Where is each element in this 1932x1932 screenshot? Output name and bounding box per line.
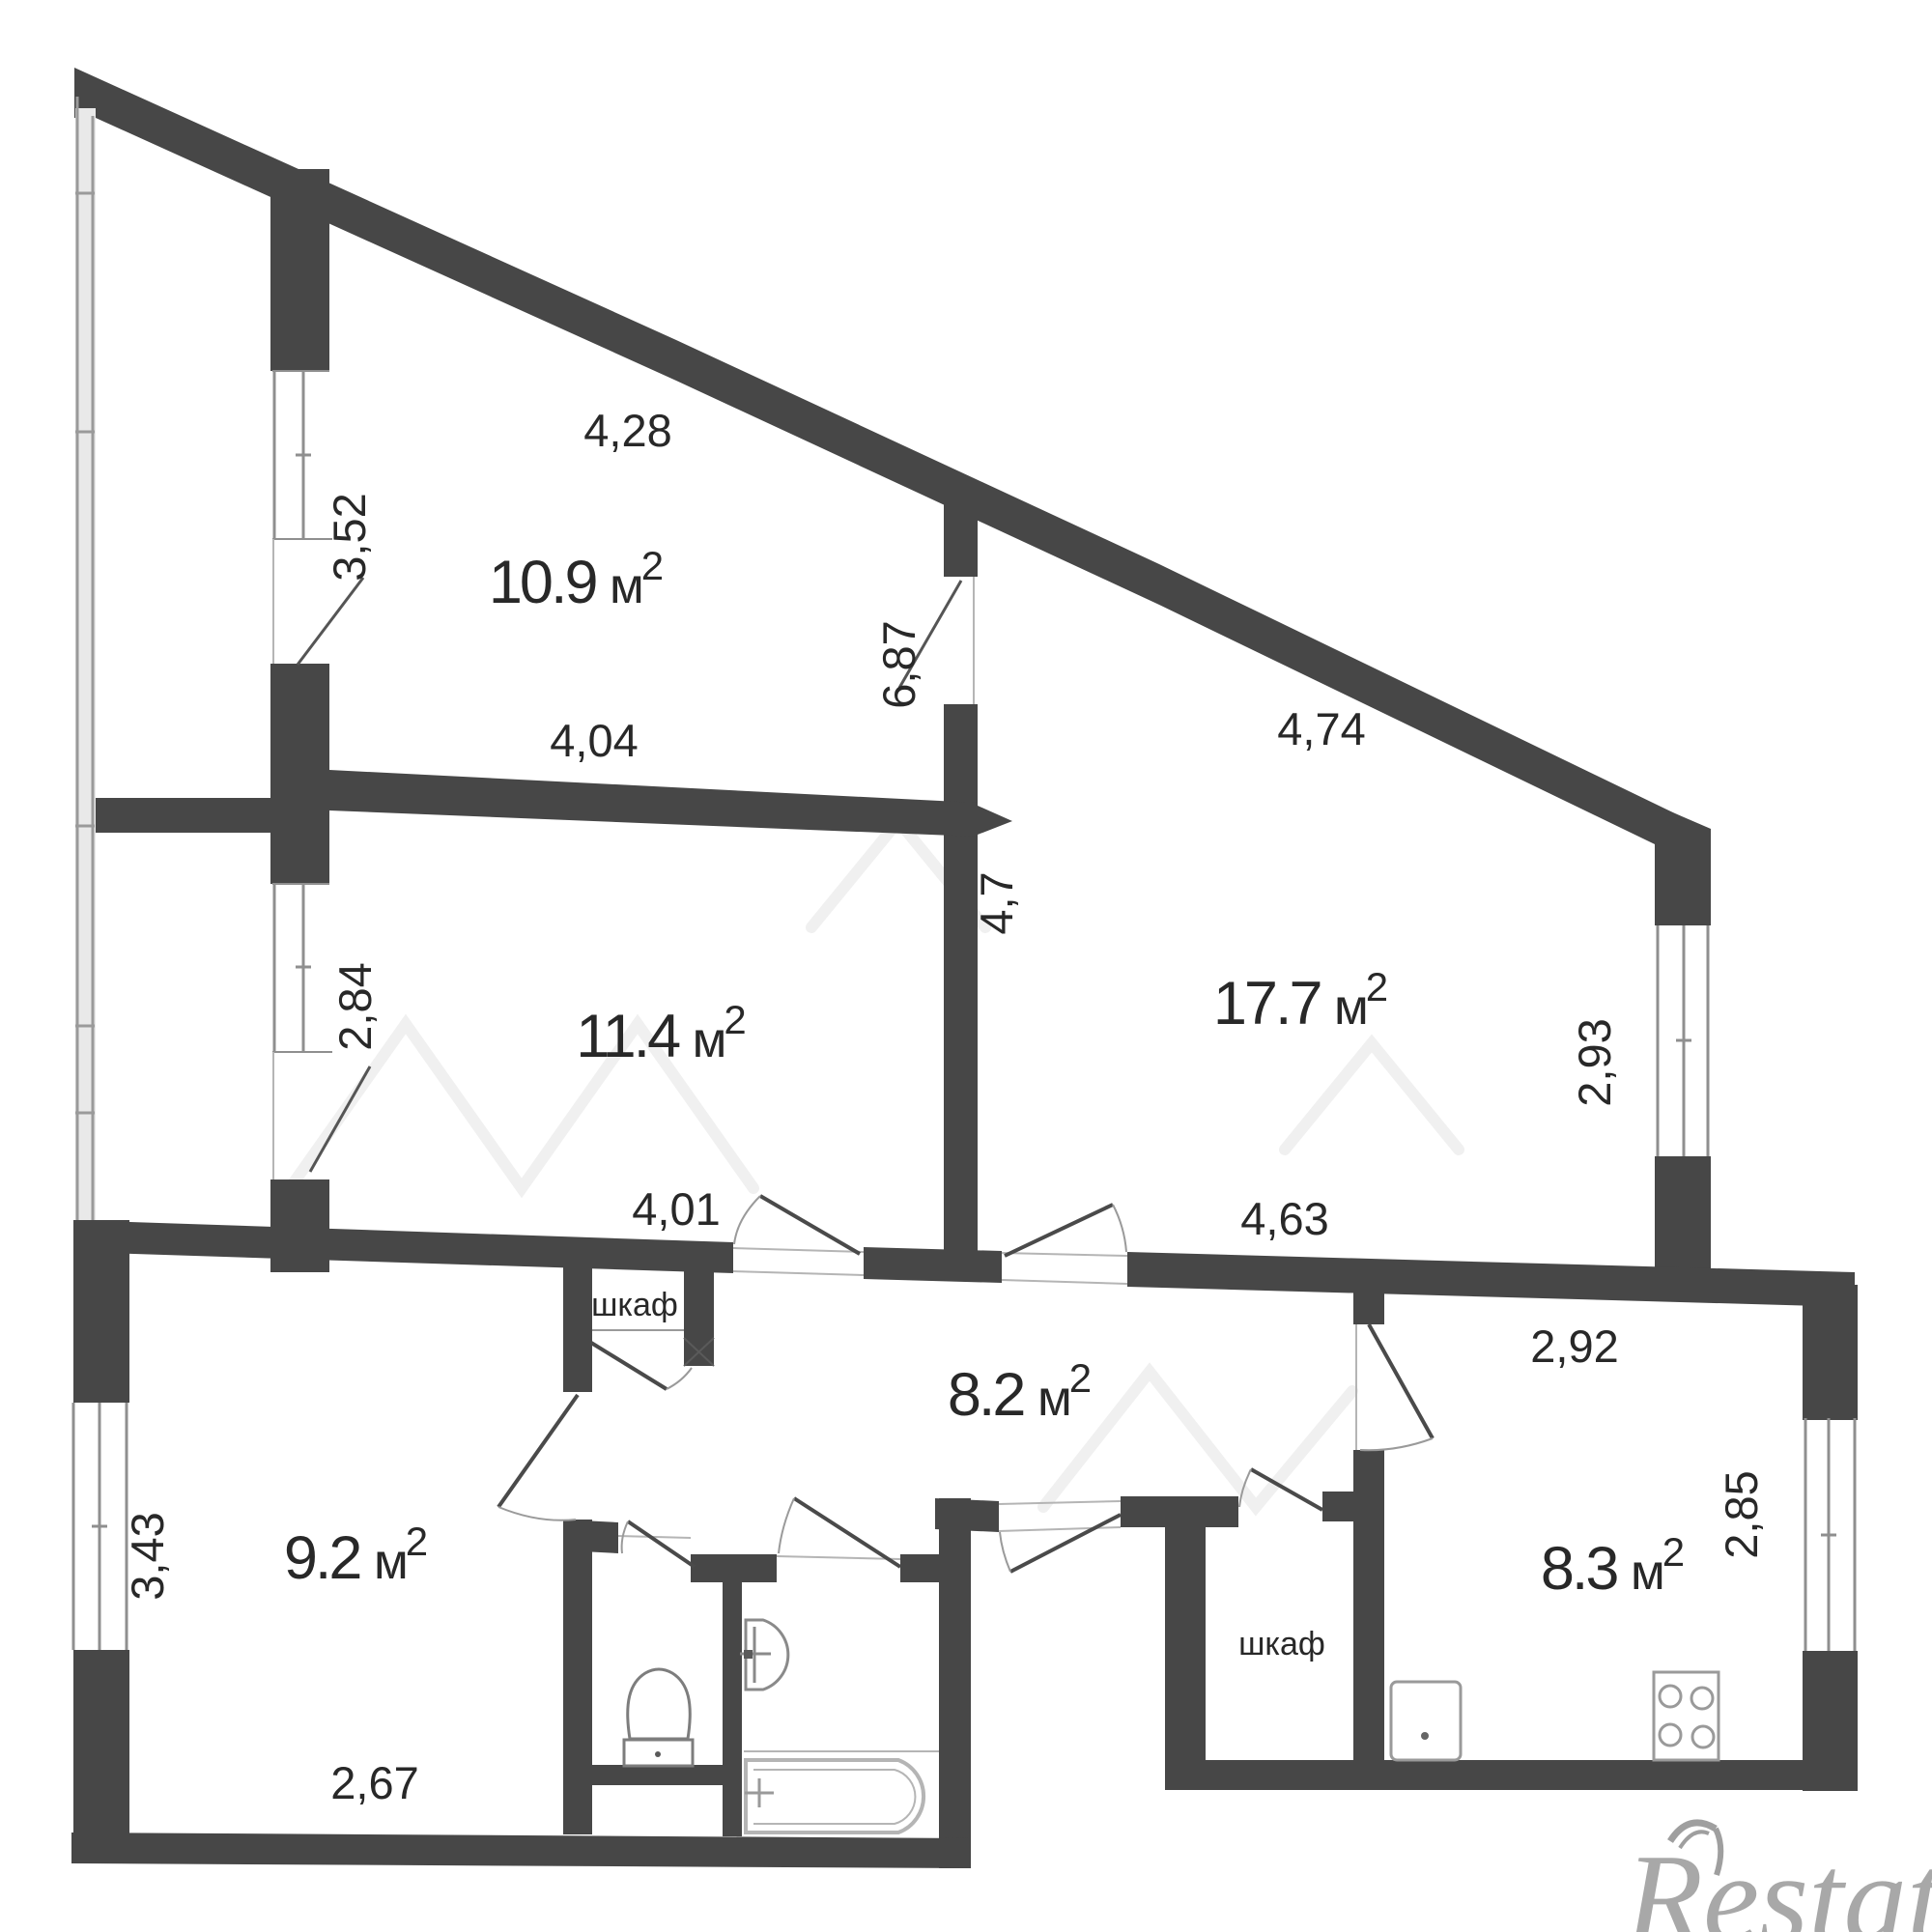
svg-text:4,7: 4,7 [971,871,1022,934]
svg-text:2,85: 2,85 [1716,1470,1767,1558]
svg-text:шкаф: шкаф [1238,1626,1325,1662]
svg-text:3,43: 3,43 [122,1512,173,1600]
svg-text:9.2 м2: 9.2 м2 [284,1519,427,1592]
svg-text:8.3 м2: 8.3 м2 [1541,1529,1684,1603]
svg-text:2,84: 2,84 [329,962,381,1050]
svg-text:4,01: 4,01 [632,1183,720,1235]
svg-text:шкаф: шкаф [591,1287,678,1323]
svg-text:4,28: 4,28 [583,405,671,456]
svg-text:3,52: 3,52 [324,493,375,581]
svg-text:4,04: 4,04 [550,715,638,766]
svg-text:4,63: 4,63 [1240,1193,1328,1244]
svg-text:4,74: 4,74 [1277,703,1365,754]
svg-text:2,92: 2,92 [1530,1321,1618,1372]
svg-text:Restate: Restate [1625,1829,1932,1932]
svg-text:2,93: 2,93 [1569,1018,1620,1106]
svg-text:8.2 м2: 8.2 м2 [948,1355,1091,1429]
svg-text:6,87: 6,87 [873,620,924,708]
svg-text:2,67: 2,67 [330,1757,418,1808]
